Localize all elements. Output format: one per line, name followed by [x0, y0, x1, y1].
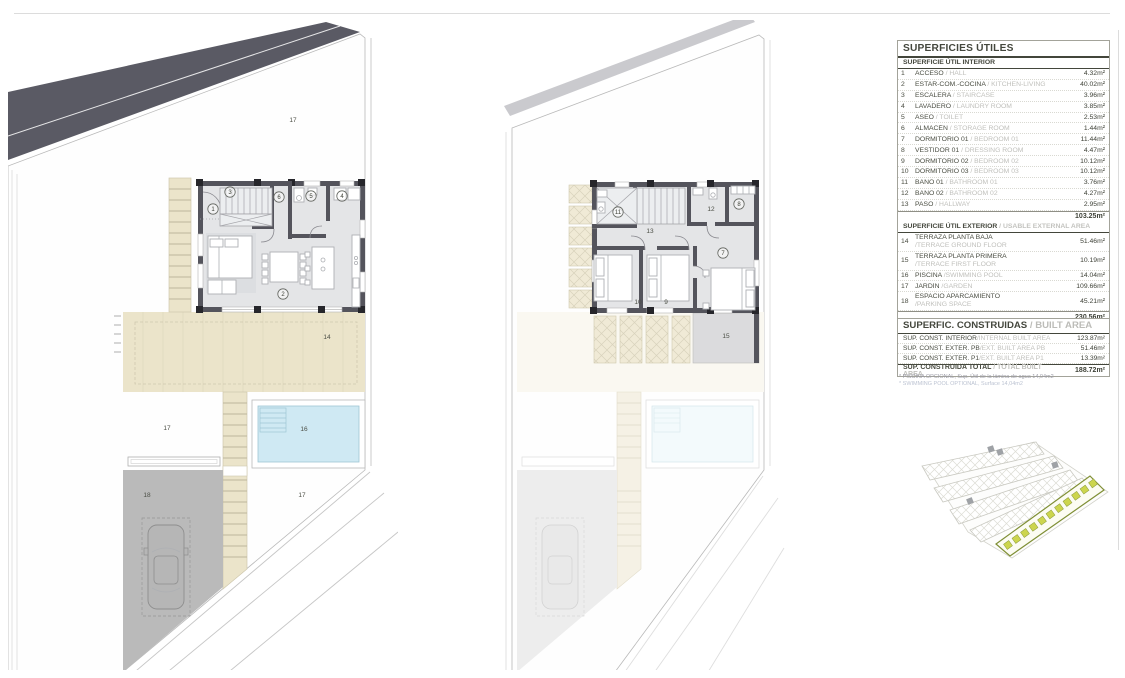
area-row: 10DORMITORIO 03 / BEDROOM 0310.12m²: [898, 167, 1109, 178]
area-row: 3ESCALERA / STAIRCASE3.96m²: [898, 91, 1109, 102]
area-row: 6ALMACÉN / STORAGE ROOM1.44m²: [898, 123, 1109, 134]
area-row: 15TERRAZA PLANTA PRIMERA/TERRACE FIRST F…: [898, 252, 1109, 271]
area-row: 16PISCINA /SWIMMING POOL14.04m²: [898, 271, 1109, 282]
car: [144, 525, 188, 609]
area-row: 13PASO / HALLWAY2.95m²: [898, 200, 1109, 211]
room-label-bano01: 11: [613, 207, 623, 217]
footnote-pool: * SWIMMING POOL OPTIONAL, Surface 14,04m…: [899, 381, 1110, 388]
house-first: 11 12 8 13 7 10 9: [590, 180, 759, 314]
label-piscina: 16: [300, 426, 308, 433]
planter: [128, 457, 220, 466]
interior-rows: 1ACCESO / HALL4.32m²2ESTAR-COM.-COCINA /…: [898, 69, 1109, 211]
room-label-dorm03: 10: [634, 299, 642, 306]
room-label-vestidor: 8: [734, 199, 744, 209]
house-ground: 1 2 3 4 5 6: [196, 179, 365, 313]
footnotes: * PISCINA OPCIONAL, Sup. Útil de la lámi…: [899, 374, 1110, 387]
terrace-first: 15: [693, 313, 759, 363]
area-row: 11BAÑO 01 / BATHROOM 013.76m²: [898, 178, 1109, 189]
pool: [252, 400, 365, 468]
bed-dorm02: [647, 255, 689, 301]
louvre-bottom: [594, 316, 690, 363]
area-row: 9DORMITORIO 02 / BEDROOM 0210.12m²: [898, 156, 1109, 167]
garden-steps: [223, 392, 247, 589]
room-label-lavadero: 4: [337, 191, 347, 201]
area-row: 4LAVADERO / LAUNDRY ROOM3.85m²: [898, 102, 1109, 113]
built-rows: SUP. CONST. INTERIOR/INTERNAL BUILT AREA…: [898, 334, 1109, 364]
room-label-escalera: 3: [225, 187, 235, 197]
room-label-bano02: 12: [707, 206, 715, 213]
area-row: 8VESTIDOR 01 / DRESSING ROOM4.47m²: [898, 145, 1109, 156]
built-row: SUP. CONST. EXTER. P1/EXT. BUILT AREA P1…: [898, 354, 1109, 364]
label-jardin-mid: 17: [163, 425, 171, 432]
top-rule: [14, 13, 1110, 14]
area-row: 7DORMITORIO 01 / BEDROOM 0111.44m²: [898, 134, 1109, 145]
ground-floor-plan: 1 2 3 4 5 6: [8, 20, 398, 670]
built-table-title: SUPERFIC. CONSTRUIDAS / BUILT AREA: [898, 319, 1109, 334]
side-steps: [169, 178, 191, 312]
label-parking: 18: [143, 492, 151, 499]
bed-dorm01: [703, 268, 755, 310]
area-row: 2ESTAR-COM.-COCINA / KITCHEN-LIVING40.02…: [898, 80, 1109, 91]
bed-dorm03: [594, 255, 632, 301]
svg-text:11: 11: [615, 210, 622, 216]
built-row: SUP. CONST. INTERIOR/INTERNAL BUILT AREA…: [898, 334, 1109, 344]
label-terraza-p1: 15: [722, 333, 730, 340]
label-jardin-top: 17: [289, 117, 297, 124]
room-label-almacen: 6: [274, 192, 284, 202]
site-plan: [912, 438, 1124, 560]
exterior-header: SUPERFICIE ÚTIL EXTERIOR / USABLE EXTERN…: [898, 222, 1109, 233]
area-row: 18ESPACIO APARCAMIENTO/PARKING SPACE45.2…: [898, 292, 1109, 311]
room-label-aseo: 5: [306, 191, 316, 201]
usable-areas-table: SUPERFICIES ÚTILES SUPERFICIE ÚTIL INTER…: [897, 40, 1110, 335]
room-label-dorm01: 7: [718, 248, 728, 258]
interior-header: SUPERFICIE ÚTIL INTERIOR: [898, 58, 1109, 69]
area-row: 1ACCESO / HALL4.32m²: [898, 69, 1109, 80]
area-row: 17JARDÍN /GARDEN109.66m²: [898, 281, 1109, 292]
area-row: 12BAÑO 02 / BATHROOM 024.27m²: [898, 189, 1109, 200]
room-label-paso: 13: [646, 228, 654, 235]
room-label-dorm02: 9: [664, 299, 668, 306]
terrace-ground: [114, 312, 365, 392]
label-terraza-pb: 14: [323, 334, 331, 341]
built-areas-table: SUPERFIC. CONSTRUIDAS / BUILT AREA SUP. …: [897, 318, 1110, 377]
usable-table-title: SUPERFICIES ÚTILES: [898, 41, 1109, 58]
label-jardin-bottom: 17: [298, 492, 306, 499]
interior-subtotal: 103.25m²: [898, 211, 1109, 222]
plan-sheet: 1 2 3 4 5 6: [0, 0, 1125, 678]
built-row: SUP. CONST. EXTER. PB/EXT. BUILT AREA PB…: [898, 344, 1109, 354]
room-label-estar: 2: [278, 289, 288, 299]
area-row: 5ASEO / TOILET2.53m²: [898, 113, 1109, 124]
area-row: 14TERRAZA PLANTA BAJA/TERRACE GROUND FLO…: [898, 233, 1109, 252]
first-floor-plan: 15: [497, 20, 787, 670]
room-label-acceso: 1: [208, 204, 218, 214]
exterior-rows: 14TERRAZA PLANTA BAJA/TERRACE GROUND FLO…: [898, 233, 1109, 312]
